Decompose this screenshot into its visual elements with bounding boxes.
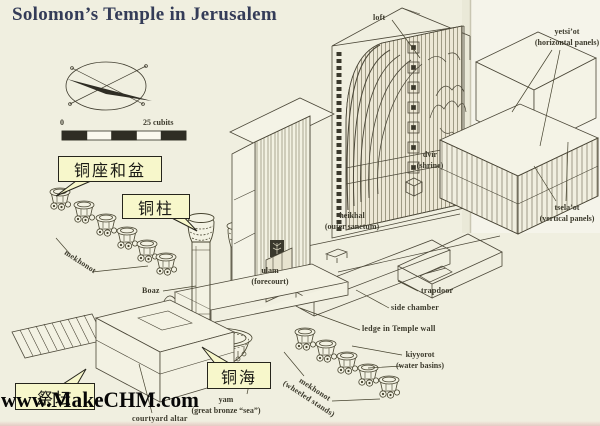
scale-end-label: 25 cubits	[143, 118, 173, 127]
label-yetsiot: yetsi’ot (horizontal panels)	[535, 26, 599, 48]
label-yam: yam (great bronze “sea”)	[191, 394, 260, 416]
label-tselaot: tsela’ot (vertical panels)	[540, 202, 595, 224]
label-ulam-name: ulam	[251, 265, 288, 276]
label-ledge: ledge in Temple wall	[362, 324, 436, 334]
label-kiyyorot: kiyyorot (water basins)	[396, 349, 444, 371]
label-tselaot-name: tsela’ot	[540, 202, 595, 213]
callout-bronze-sea: 铜海	[207, 362, 271, 389]
page-title: Solomon’s Temple in Jerusalem	[12, 4, 277, 26]
label-side-chamber: side chamber	[391, 303, 439, 313]
temple-porch	[175, 98, 348, 323]
label-heikhal: heikhal (outer sanctum)	[325, 210, 379, 232]
scale-start-label: 0	[60, 118, 64, 127]
label-boaz: Boaz	[142, 286, 160, 296]
label-dvir: dvir (shrine)	[417, 149, 444, 171]
label-heikhal-desc: (outer sanctum)	[325, 221, 379, 232]
callout-stands-and-basins: 铜座和盆	[58, 156, 162, 182]
label-kiyyorot-desc: (water basins)	[396, 360, 444, 371]
temple-illustration	[0, 0, 600, 426]
label-kiyyorot-name: kiyyorot	[396, 349, 444, 360]
callout-pillar: 铜柱	[122, 194, 190, 219]
label-yam-desc: (great bronze “sea”)	[191, 405, 260, 416]
label-trapdoor: trapdoor	[421, 286, 453, 296]
book-page: Solomon’s Temple in Jerusalem 0 25 cubit…	[0, 0, 600, 426]
label-heikhal-name: heikhal	[325, 210, 379, 221]
label-tselaot-desc: (vertical panels)	[540, 213, 595, 224]
label-dvir-desc: (shrine)	[417, 160, 444, 171]
compass-icon	[66, 62, 152, 110]
label-yam-name: yam	[191, 394, 260, 405]
scale-bar	[62, 131, 186, 140]
label-loft: loft	[373, 13, 385, 23]
label-ulam-desc: (forecourt)	[251, 276, 288, 287]
label-dvir-name: dvir	[417, 149, 444, 160]
watermark: www.MakeCHM.com	[1, 387, 199, 413]
label-yetsiot-name: yetsi’ot	[535, 26, 599, 37]
label-ulam: ulam (forecourt)	[251, 265, 288, 287]
label-courtyard-altar: courtyard altar	[132, 414, 188, 424]
label-yetsiot-desc: (horizontal panels)	[535, 37, 599, 48]
